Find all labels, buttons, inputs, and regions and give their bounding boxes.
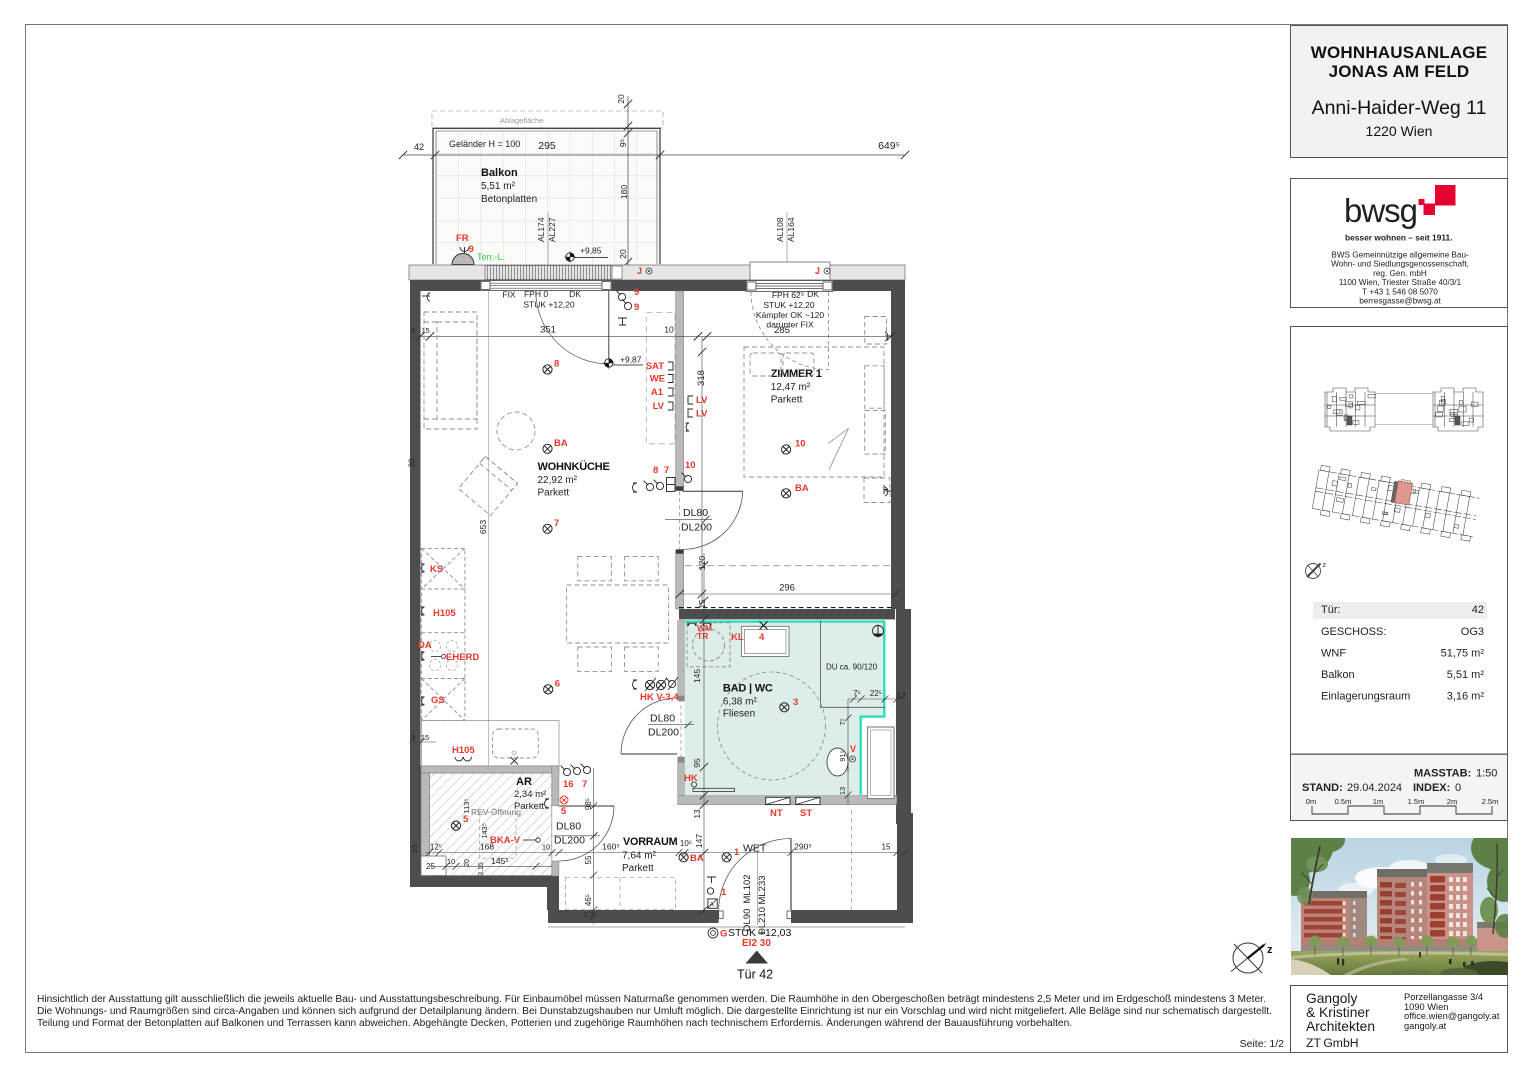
svg-text:143⁵: 143⁵ — [480, 823, 489, 839]
svg-text:1100 Wien, Triester Straße 40/: 1100 Wien, Triester Straße 40/3/1 — [1339, 278, 1462, 287]
svg-text:22,92 m²: 22,92 m² — [538, 475, 578, 486]
svg-text:0: 0 — [1455, 782, 1461, 794]
svg-text:DL80: DL80 — [556, 821, 581, 833]
svg-text:Parkett: Parkett — [538, 488, 570, 499]
svg-text:12: 12 — [897, 691, 906, 700]
svg-text:145: 145 — [692, 669, 702, 683]
svg-text:1m: 1m — [1373, 797, 1383, 806]
svg-text:DA: DA — [418, 640, 432, 651]
svg-text:Fliesen: Fliesen — [723, 709, 755, 720]
svg-text:AL164: AL164 — [786, 217, 796, 242]
svg-text:168: 168 — [480, 842, 494, 852]
svg-text:WOHNKÜCHE: WOHNKÜCHE — [538, 460, 610, 473]
svg-text:KL: KL — [731, 632, 744, 643]
svg-text:Parkett: Parkett — [771, 395, 803, 406]
svg-text:DU ca. 90/120: DU ca. 90/120 — [826, 663, 878, 672]
svg-text:145⁵: 145⁵ — [491, 856, 509, 866]
svg-text:29.04.2024: 29.04.2024 — [1347, 782, 1402, 794]
svg-text:10: 10 — [685, 460, 696, 471]
svg-text:0.5m: 0.5m — [1335, 797, 1352, 806]
svg-text:6: 6 — [555, 678, 560, 689]
svg-text:Geländer H = 100: Geländer H = 100 — [449, 139, 520, 149]
svg-text:Balkon: Balkon — [481, 167, 518, 179]
svg-text:bwsg: bwsg — [1344, 192, 1417, 229]
svg-text:10: 10 — [795, 439, 806, 450]
svg-text:4: 4 — [759, 632, 765, 643]
svg-text:95: 95 — [692, 758, 702, 768]
svg-text:8: 8 — [653, 465, 658, 476]
svg-text:160⁵: 160⁵ — [602, 842, 620, 852]
svg-text:296: 296 — [779, 583, 795, 594]
svg-text:9: 9 — [634, 302, 639, 313]
svg-text:285: 285 — [774, 325, 790, 336]
svg-text:42: 42 — [414, 142, 424, 152]
svg-text:DL200: DL200 — [681, 522, 712, 534]
svg-text:AL174: AL174 — [536, 217, 546, 242]
svg-text:5: 5 — [463, 814, 469, 825]
svg-text:1:50: 1:50 — [1476, 768, 1497, 780]
svg-text:ML233: ML233 — [757, 875, 768, 904]
svg-text:20: 20 — [616, 94, 626, 104]
svg-text:GESCHOSS:: GESCHOSS: — [1321, 626, 1386, 638]
svg-text:113⁵: 113⁵ — [462, 798, 471, 813]
svg-text:318: 318 — [696, 370, 707, 386]
svg-text:290⁵: 290⁵ — [794, 842, 812, 852]
svg-text:STAND:: STAND: — [1302, 782, 1343, 794]
svg-text:TR: TR — [697, 631, 708, 641]
svg-text:3: 3 — [793, 697, 798, 708]
svg-text:STUK +12,20: STUK +12,20 — [763, 300, 815, 310]
svg-text:10: 10 — [664, 325, 674, 335]
svg-text:9: 9 — [634, 287, 639, 298]
svg-text:12,47 m²: 12,47 m² — [771, 382, 811, 393]
svg-text:91⁵: 91⁵ — [838, 750, 847, 761]
svg-text:FPH 0: FPH 0 — [524, 289, 548, 299]
svg-text:BA: BA — [795, 483, 809, 494]
svg-text:3: 3 — [411, 735, 415, 742]
svg-text:MASSTAB:: MASSTAB: — [1414, 768, 1471, 780]
svg-text:2.5m: 2.5m — [1482, 797, 1499, 806]
svg-text:649⁵: 649⁵ — [878, 140, 900, 152]
svg-text:OG3: OG3 — [1461, 626, 1484, 638]
svg-text:STUK +12,20: STUK +12,20 — [523, 300, 575, 310]
svg-text:FIX: FIX — [502, 290, 516, 300]
svg-text:2,34 m²: 2,34 m² — [514, 789, 546, 800]
svg-text:351: 351 — [540, 325, 556, 336]
svg-text:20: 20 — [408, 458, 417, 467]
svg-text:VORRAUM: VORRAUM — [623, 836, 678, 848]
svg-text:Einlagerungsraum: Einlagerungsraum — [1321, 691, 1410, 703]
svg-text:DL80: DL80 — [683, 507, 708, 519]
svg-text:12⁵: 12⁵ — [430, 843, 442, 852]
svg-text:55: 55 — [584, 855, 593, 864]
svg-text:HK V-3,4: HK V-3,4 — [640, 692, 679, 703]
svg-text:2m: 2m — [1447, 797, 1457, 806]
svg-text:ML102: ML102 — [742, 874, 753, 903]
svg-text:NT: NT — [770, 808, 783, 819]
svg-text:berresgasse@bwsg.at: berresgasse@bwsg.at — [1359, 297, 1441, 306]
svg-text:KS: KS — [430, 564, 443, 575]
svg-text:Tür:: Tür: — [1321, 604, 1341, 616]
svg-text:7: 7 — [582, 779, 587, 790]
svg-text:13: 13 — [693, 809, 702, 818]
svg-text:16: 16 — [563, 779, 574, 790]
svg-text:AR: AR — [516, 776, 532, 788]
svg-text:AL227: AL227 — [547, 217, 557, 242]
svg-text:DK: DK — [569, 289, 581, 299]
svg-text:15: 15 — [410, 845, 419, 853]
svg-text:8: 8 — [554, 359, 559, 370]
svg-text:Betonplatten: Betonplatten — [481, 194, 537, 205]
svg-text:FPH 62⁵: FPH 62⁵ — [772, 290, 804, 300]
svg-text:51,75 m²: 51,75 m² — [1441, 648, 1485, 660]
svg-text:10⁵: 10⁵ — [680, 839, 692, 848]
svg-text:A: A — [710, 902, 715, 909]
svg-text:Terr.-L.: Terr.-L. — [477, 252, 505, 262]
svg-text:J: J — [815, 266, 820, 276]
svg-text:BA: BA — [690, 853, 704, 864]
svg-text:7⁵: 7⁵ — [853, 689, 861, 698]
svg-text:AL108: AL108 — [775, 217, 785, 242]
svg-text:A1: A1 — [651, 387, 664, 398]
svg-text:Tür 42: Tür 42 — [737, 968, 773, 982]
svg-text:20: 20 — [464, 859, 471, 867]
svg-text:3,15: 3,15 — [478, 862, 485, 876]
svg-text:5,51 m²: 5,51 m² — [1447, 669, 1485, 681]
svg-text:H105: H105 — [452, 745, 475, 756]
svg-text:0m: 0m — [1306, 797, 1316, 806]
svg-text:V: V — [850, 744, 856, 754]
svg-text:180: 180 — [619, 185, 629, 199]
svg-text:1.5m: 1.5m — [1408, 797, 1425, 806]
svg-text:Parkett: Parkett — [622, 863, 654, 874]
svg-text:10: 10 — [447, 857, 455, 866]
svg-text:J: J — [637, 266, 642, 276]
svg-text:EI2 30: EI2 30 — [742, 938, 771, 949]
svg-text:BWS Gemeinnützige allgemeine B: BWS Gemeinnützige allgemeine Bau- — [1331, 251, 1469, 260]
svg-text:z: z — [1267, 944, 1273, 956]
svg-text:15: 15 — [421, 326, 429, 335]
svg-text:10: 10 — [542, 843, 550, 852]
svg-text:BA: BA — [554, 438, 568, 449]
svg-text:INDEX:: INDEX: — [1413, 782, 1450, 794]
svg-text:SAT: SAT — [646, 361, 664, 372]
svg-text:13: 13 — [838, 787, 847, 795]
svg-text:WNF: WNF — [1321, 648, 1346, 660]
svg-text:Kämpfer OK ~120: Kämpfer OK ~120 — [756, 310, 825, 320]
svg-text:WE: WE — [650, 374, 665, 385]
svg-text:147: 147 — [694, 834, 704, 848]
svg-text:DL80: DL80 — [650, 713, 675, 725]
svg-text:7⁵: 7⁵ — [584, 912, 591, 919]
svg-text:FR: FR — [456, 233, 469, 244]
svg-text:+9,87: +9,87 — [620, 355, 642, 365]
svg-text:DK: DK — [807, 289, 819, 299]
svg-text:295: 295 — [538, 140, 556, 152]
svg-text:7,64 m²: 7,64 m² — [622, 851, 657, 862]
svg-text:46⁵: 46⁵ — [584, 894, 593, 906]
svg-text:reg. Gen. mbH: reg. Gen. mbH — [1373, 269, 1427, 278]
svg-text:98⁵: 98⁵ — [584, 798, 593, 810]
svg-text:DL200: DL200 — [554, 835, 585, 847]
svg-text:9: 9 — [469, 244, 474, 255]
svg-text:5,51 m²: 5,51 m² — [481, 181, 516, 192]
svg-text:EHERD: EHERD — [446, 652, 479, 663]
svg-text:Balkon: Balkon — [1321, 669, 1355, 681]
svg-text:7: 7 — [554, 518, 559, 529]
svg-text:BAD | WC: BAD | WC — [723, 683, 773, 695]
svg-text:653: 653 — [478, 520, 488, 534]
svg-text:DL200: DL200 — [648, 727, 679, 739]
svg-text:15: 15 — [882, 843, 891, 852]
svg-text:3,16 m²: 3,16 m² — [1447, 691, 1485, 703]
svg-text:7⁵: 7⁵ — [838, 718, 847, 725]
svg-text:H105: H105 — [433, 608, 456, 619]
svg-text:T +43 1 546 08 5070: T +43 1 546 08 5070 — [1362, 287, 1438, 296]
svg-text:z: z — [1323, 562, 1327, 569]
svg-text:7: 7 — [664, 465, 669, 476]
svg-text:20: 20 — [618, 249, 628, 259]
svg-text:22⁵: 22⁵ — [870, 689, 882, 698]
svg-text:5: 5 — [561, 806, 567, 817]
svg-text:42: 42 — [1472, 604, 1484, 616]
svg-text:7⁵: 7⁵ — [591, 912, 598, 919]
svg-text:GS: GS — [431, 695, 445, 706]
svg-text:LV: LV — [653, 401, 665, 412]
svg-text:9⁵: 9⁵ — [618, 139, 628, 147]
svg-text:Ablagefläche: Ablagefläche — [500, 116, 543, 125]
svg-text:+9,85: +9,85 — [580, 246, 602, 256]
svg-text:ST: ST — [800, 808, 812, 819]
svg-text:6,38 m²: 6,38 m² — [723, 697, 758, 708]
svg-text:15: 15 — [698, 599, 707, 608]
svg-text:G: G — [720, 929, 727, 940]
svg-text:3: 3 — [411, 328, 415, 335]
svg-text:besser wohnen – seit 1911.: besser wohnen – seit 1911. — [1345, 233, 1453, 243]
svg-text:Wohn- und Siedlungsgenossensch: Wohn- und Siedlungsgenossenschaft, — [1331, 260, 1469, 269]
